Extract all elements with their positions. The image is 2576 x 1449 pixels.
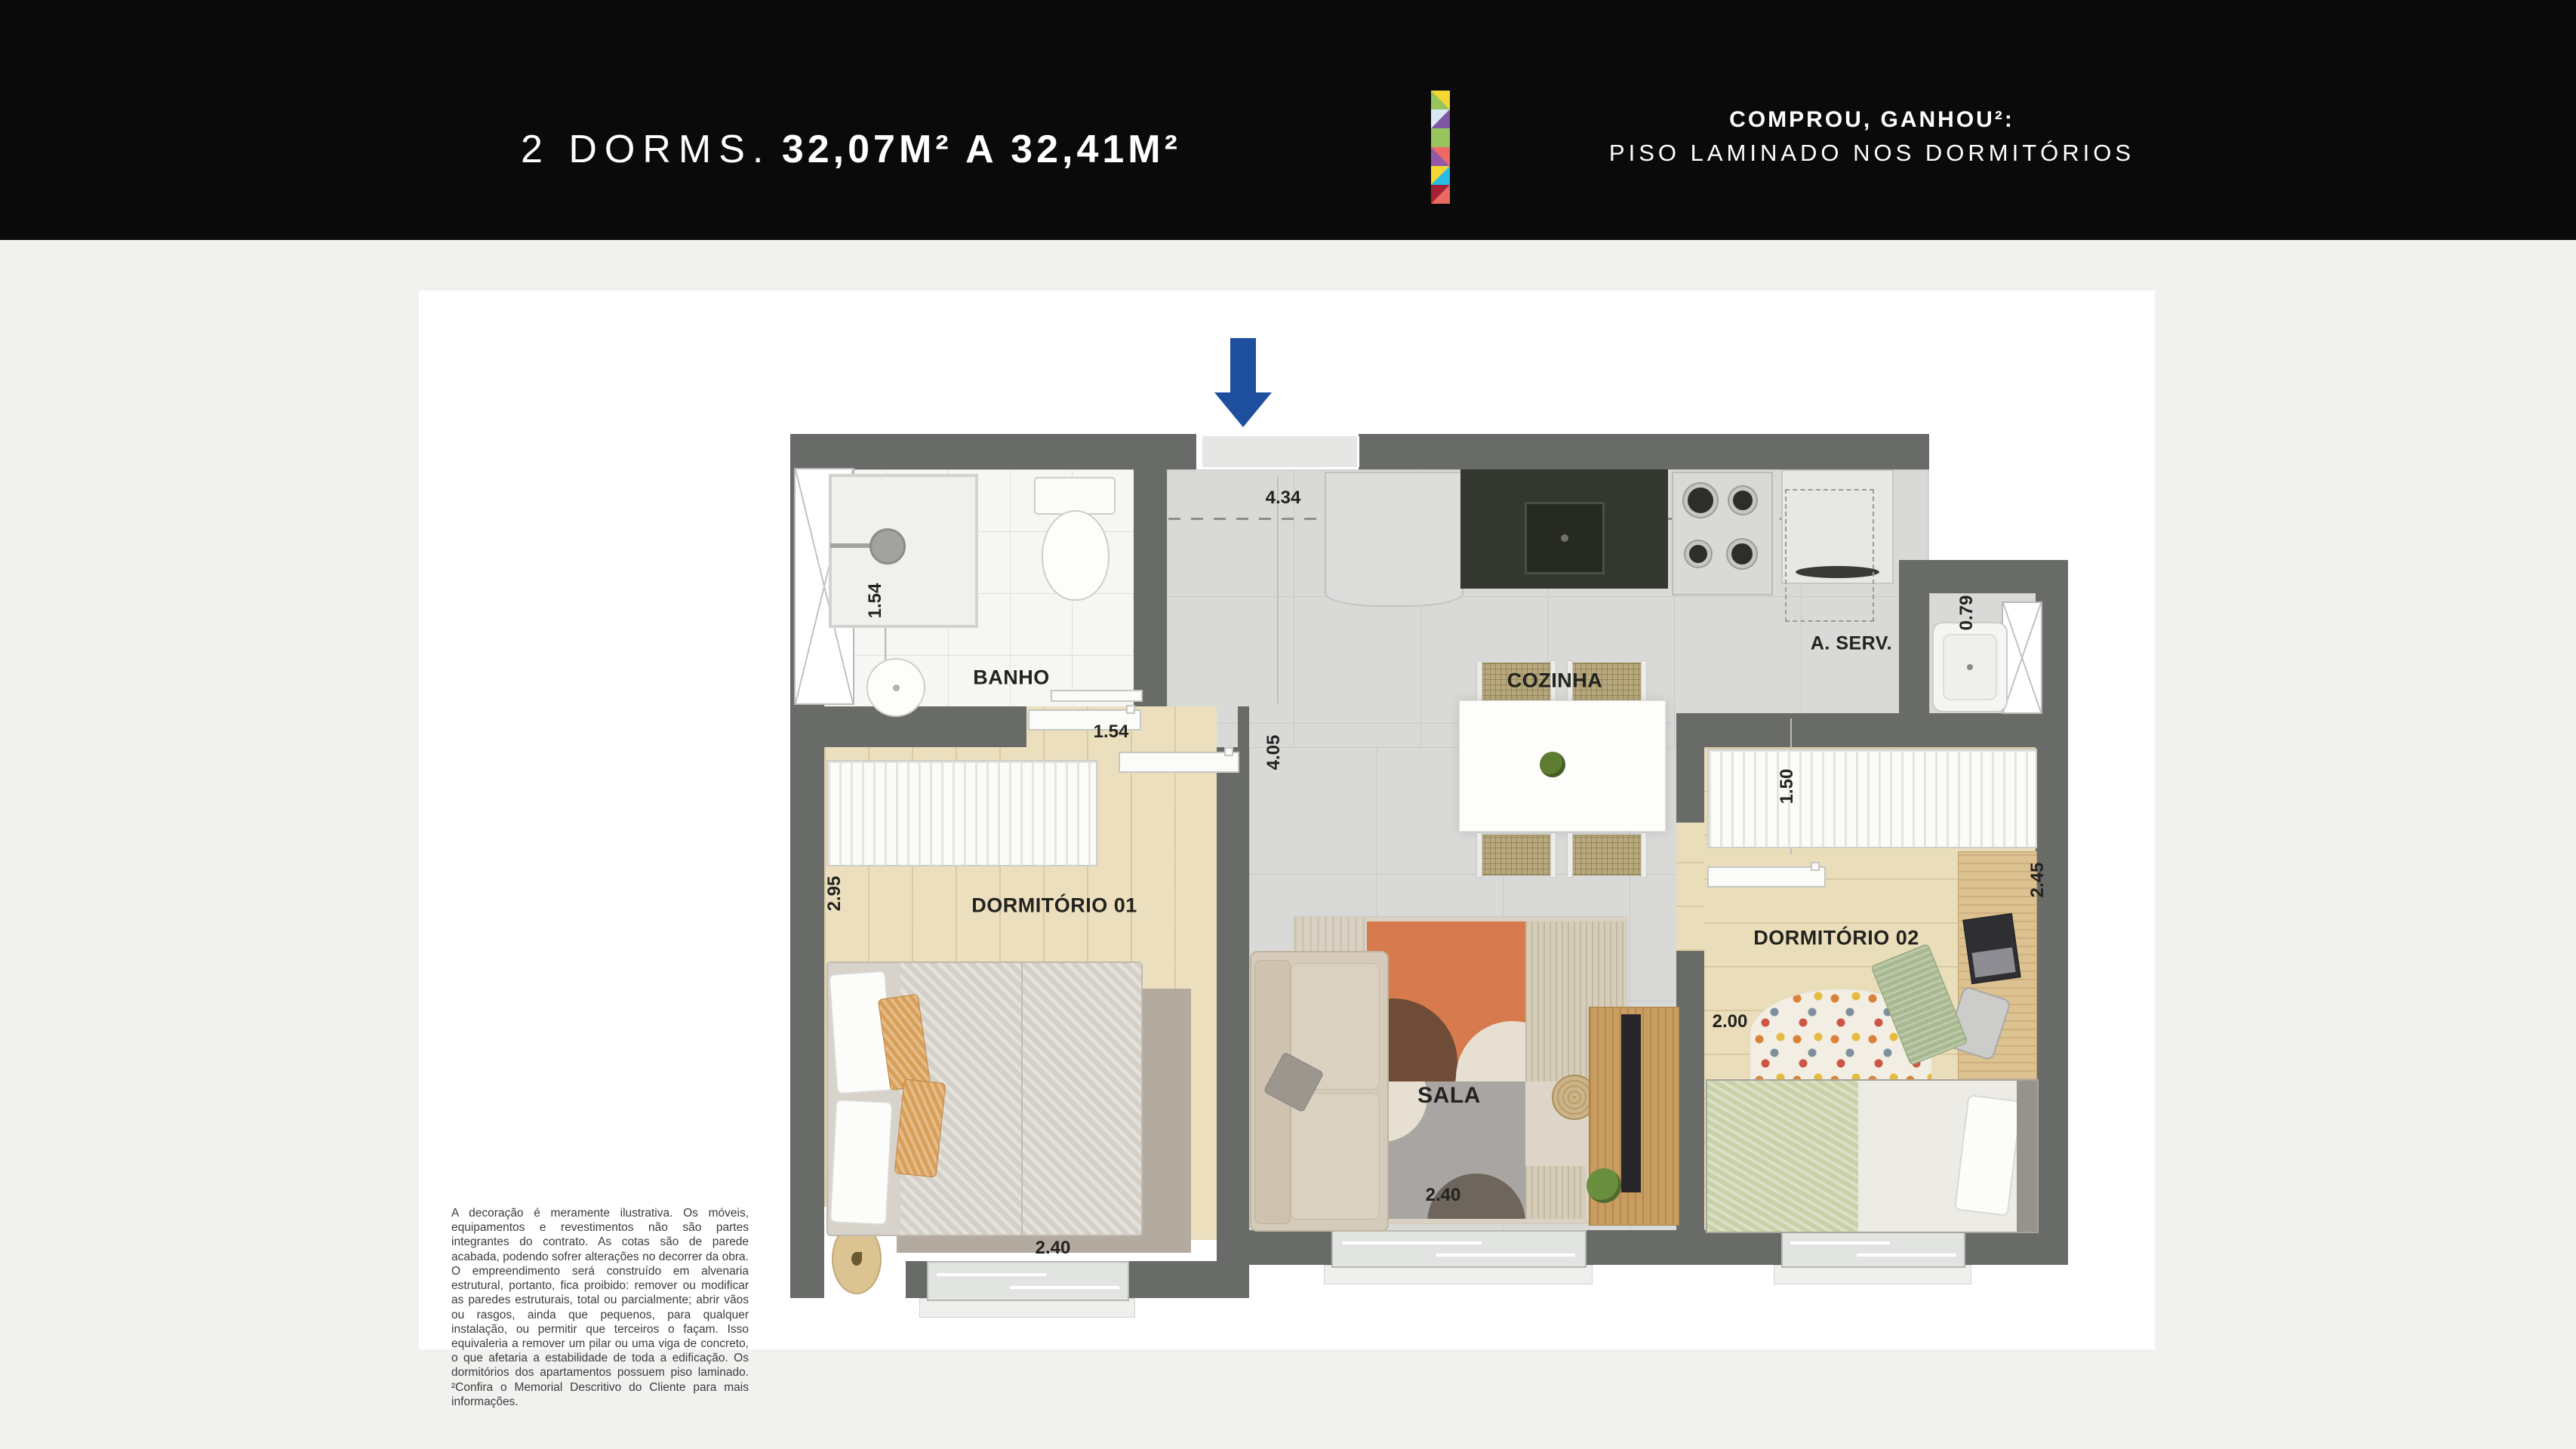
room-label-cozinha: COZINHA bbox=[1507, 669, 1603, 693]
dining-chair bbox=[1569, 835, 1645, 875]
disclaimer-text: A decoração é meramente ilustrativa. Os … bbox=[451, 1206, 749, 1409]
page: { "header": { "title_light": "2 DORMS.",… bbox=[0, 0, 2576, 1449]
towel-bar bbox=[1051, 690, 1143, 702]
room-label-banho: BANHO bbox=[973, 666, 1050, 690]
dim-banho-bottom: 1.54 bbox=[1094, 721, 1129, 743]
stove bbox=[1672, 472, 1773, 595]
dorm1-door-leaf bbox=[1119, 752, 1239, 773]
dim-aserv: 1.50 bbox=[1777, 769, 1798, 804]
dorm2-door-threshold bbox=[1676, 823, 1704, 951]
dorm2-wardrobe bbox=[1707, 749, 2037, 848]
wall-stub-hall bbox=[1238, 706, 1249, 747]
dining-chair bbox=[1479, 835, 1554, 875]
entrance-door bbox=[1200, 436, 1359, 467]
washbasin bbox=[866, 658, 925, 717]
toilet-bowl bbox=[1042, 510, 1109, 601]
toilet-tank bbox=[1034, 477, 1116, 515]
room-label-aserv: A. SERV. bbox=[1811, 633, 1892, 655]
kitchen-sink bbox=[1525, 502, 1605, 574]
sofa bbox=[1250, 951, 1389, 1232]
dim-tanque: 0.79 bbox=[1956, 595, 1977, 631]
wall-sala-dorm2-upper bbox=[1676, 747, 1704, 823]
plan-title-type: 2 DORMS. bbox=[521, 128, 771, 171]
duct-shaft bbox=[2002, 601, 2042, 714]
room-label-sala: SALA bbox=[1417, 1083, 1481, 1109]
logo-square bbox=[1431, 128, 1450, 147]
sala-window bbox=[1331, 1230, 1587, 1268]
table-plant bbox=[1540, 752, 1565, 777]
bed-pillow bbox=[1954, 1094, 2022, 1217]
logo-square bbox=[1431, 109, 1450, 128]
entrance-arrow-icon bbox=[1214, 338, 1272, 427]
dorm2-door-leaf bbox=[1707, 866, 1826, 888]
dim-dorm2-right: 2.45 bbox=[2027, 863, 2048, 898]
floor-plant bbox=[1587, 1168, 1621, 1203]
dorm1-bed bbox=[826, 961, 1143, 1236]
bed-pillow bbox=[829, 1099, 893, 1226]
wall-wing-left bbox=[1899, 593, 1929, 726]
room-label-dorm1: DORMITÓRIO 01 bbox=[971, 894, 1137, 918]
logo-square bbox=[1431, 147, 1450, 166]
room-label-dorm2: DORMITÓRIO 02 bbox=[1753, 927, 1919, 950]
dim-hall: 4.05 bbox=[1263, 735, 1285, 771]
wall-top-left bbox=[790, 434, 1196, 469]
fridge bbox=[1325, 472, 1463, 607]
plan-title-area: 32,07M² A 32,41M² bbox=[782, 128, 1181, 171]
promo-block: COMPROU, GANHOU²: PISO LAMINADO NOS DORM… bbox=[1600, 107, 2144, 167]
dim-dorm1-bottom: 2.40 bbox=[1036, 1238, 1071, 1259]
dim-dorm1-left: 2.95 bbox=[824, 876, 845, 912]
dim-banho-left: 1.54 bbox=[865, 583, 886, 619]
header-bar: 2 DORMS. 32,07M² A 32,41M² COMPROU, GANH… bbox=[0, 0, 2576, 240]
wall-sala-dorm2-lower bbox=[1676, 951, 1704, 1265]
laptop bbox=[1962, 913, 2020, 984]
dorm1-window bbox=[927, 1261, 1129, 1301]
promo-subline: PISO LAMINADO NOS DORMITÓRIOS bbox=[1600, 140, 2144, 167]
wall-banho-bottom bbox=[824, 706, 1026, 747]
logo-square bbox=[1431, 166, 1450, 185]
brand-logo-icon bbox=[1431, 91, 1450, 204]
dim-sala-bottom: 2.40 bbox=[1426, 1185, 1461, 1206]
promo-headline: COMPROU, GANHOU²: bbox=[1600, 107, 2144, 133]
tv bbox=[1621, 1014, 1641, 1192]
dim-top-width: 4.34 bbox=[1266, 488, 1301, 509]
dorm1-wardrobe bbox=[826, 760, 1097, 866]
shower-head bbox=[869, 528, 906, 565]
dorm2-bed bbox=[1706, 1079, 2039, 1233]
wall-dorm2-top bbox=[1676, 713, 2068, 747]
floorplan: BANHO COZINHA A. SERV. DORMITÓRIO 01 DOR… bbox=[785, 432, 2068, 1319]
plan-title: 2 DORMS. 32,07M² A 32,41M² bbox=[521, 127, 1181, 172]
wall-banho-right bbox=[1134, 469, 1167, 706]
wall-top-right bbox=[1359, 434, 1929, 469]
wall-dorm1-sala bbox=[1217, 747, 1249, 1261]
dorm2-window bbox=[1781, 1230, 1965, 1268]
logo-square bbox=[1431, 91, 1450, 109]
dim-dorm2-left: 2.00 bbox=[1713, 1011, 1748, 1032]
overhead-cabinet-dashed bbox=[1785, 489, 1874, 622]
laundry-tank bbox=[1932, 622, 2008, 712]
dimension-line bbox=[1277, 477, 1279, 703]
wall-wing-top bbox=[1899, 560, 2068, 593]
logo-square bbox=[1431, 185, 1450, 204]
